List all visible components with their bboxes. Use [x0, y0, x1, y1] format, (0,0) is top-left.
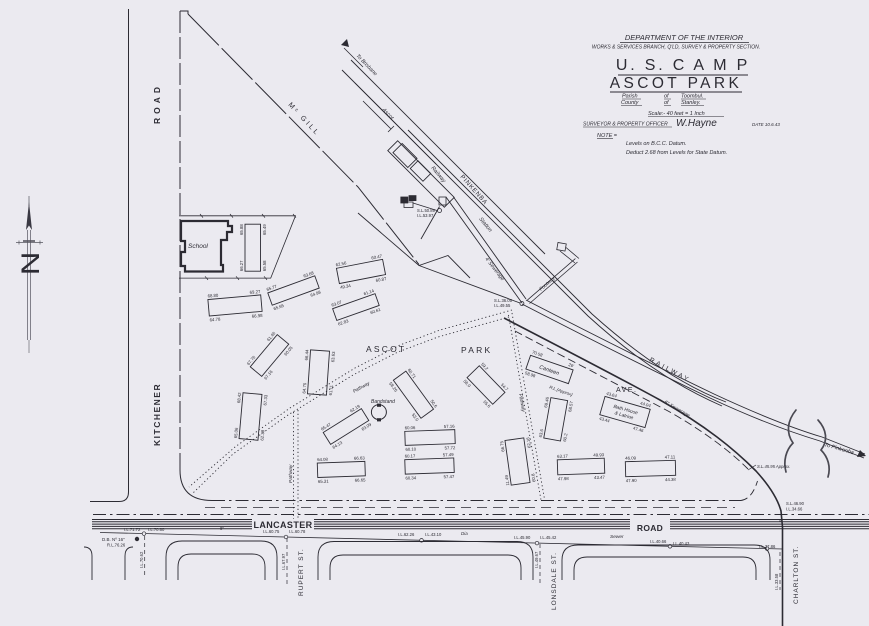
svg-text:County: County: [621, 100, 640, 106]
svg-text:47.98: 47.98: [558, 476, 570, 481]
svg-text:8″: 8″: [220, 526, 224, 531]
svg-text:ASCOT: ASCOT: [366, 344, 406, 354]
svg-text:I.L.62.26: I.L.62.26: [398, 532, 415, 537]
svg-text:57.47: 57.47: [444, 474, 456, 479]
svg-text:I.L.45.90: I.L.45.90: [514, 535, 531, 540]
svg-text:65.49: 65.49: [262, 224, 267, 235]
svg-text:AVE.: AVE.: [616, 387, 637, 394]
svg-text:60.17: 60.17: [405, 453, 417, 458]
svg-text:Bandstand: Bandstand: [371, 399, 395, 405]
svg-text:43.47: 43.47: [594, 475, 606, 480]
svg-text:I.L.40.66: I.L.40.66: [650, 539, 667, 544]
svg-text:I.L.67.97: I.L.67.97: [281, 553, 286, 570]
svg-text:47.90: 47.90: [626, 478, 637, 483]
svg-text:S.L.46.90: S.L.46.90: [786, 501, 805, 506]
svg-text:68.80: 68.80: [207, 293, 219, 299]
svg-text:DEPARTMENT OF THE INTERIOR: DEPARTMENT OF THE INTERIOR: [625, 33, 744, 42]
svg-text:N: N: [16, 252, 43, 276]
svg-text:Pathway: Pathway: [288, 464, 294, 483]
svg-text:63.17: 63.17: [557, 453, 569, 458]
svg-text:I.L.53.97: I.L.53.97: [417, 213, 434, 218]
svg-text:57.49: 57.49: [443, 452, 455, 457]
svg-text:66.44: 66.44: [304, 349, 310, 361]
svg-text:School: School: [188, 243, 208, 250]
svg-text:60.06: 60.06: [405, 425, 417, 430]
svg-text:I.L.34.66: I.L.34.66: [786, 507, 803, 512]
svg-text:65.31: 65.31: [318, 479, 330, 484]
svg-text:W.Hayne: W.Hayne: [676, 118, 717, 129]
svg-text:66.63: 66.63: [354, 455, 366, 460]
svg-text:R.L.76.26: R.L.76.26: [107, 543, 126, 548]
svg-text:62.38: 62.38: [259, 429, 265, 441]
svg-text:Toombul.: Toombul.: [681, 94, 703, 100]
svg-text:I.L.60.75: I.L.60.75: [263, 529, 280, 534]
svg-text:64.78: 64.78: [209, 316, 221, 322]
svg-text:ROAD: ROAD: [152, 83, 162, 124]
svg-text:65.06: 65.06: [233, 427, 239, 439]
svg-text:66.98: 66.98: [252, 313, 264, 319]
svg-text:I.L.49.55: I.L.49.55: [494, 303, 511, 308]
svg-text:Stanley.: Stanley.: [681, 100, 701, 106]
svg-text:KITCHENER: KITCHENER: [152, 383, 162, 446]
svg-text:RUPERT ST.: RUPERT ST.: [298, 548, 305, 596]
svg-text:66.65: 66.65: [355, 477, 367, 482]
svg-text:65.58: 65.58: [262, 260, 267, 271]
svg-text:63.63: 63.63: [330, 351, 336, 363]
svg-text:64.75: 64.75: [302, 382, 308, 394]
svg-text:PARK: PARK: [461, 345, 492, 355]
svg-text:60.10: 60.10: [405, 446, 417, 451]
svg-text:69.27: 69.27: [249, 289, 261, 295]
svg-text:67.33: 67.33: [263, 394, 269, 406]
svg-text:Levels on B.C.C. Datum.: Levels on B.C.C. Datum.: [626, 141, 687, 147]
svg-text:I.L.45.42: I.L.45.42: [540, 535, 557, 540]
svg-text:DATE 10.6.43: DATE 10.6.43: [752, 122, 780, 127]
svg-text:60.34: 60.34: [405, 475, 417, 480]
svg-text:LONSDALE ST.: LONSDALE ST.: [551, 552, 558, 610]
svg-text:57.16: 57.16: [444, 424, 456, 429]
svg-text:Sewer: Sewer: [610, 534, 624, 540]
svg-text:of: of: [664, 100, 669, 106]
svg-text:I.L.49.67: I.L.49.67: [534, 551, 539, 568]
svg-text:I.L.43.10: I.L.43.10: [425, 532, 442, 537]
svg-text:SURVEYOR & PROPERTY OFFICER: SURVEYOR & PROPERTY OFFICER: [583, 122, 668, 128]
svg-text:44.38: 44.38: [665, 477, 676, 482]
svg-text:ASCOT PARK: ASCOT PARK: [610, 75, 742, 92]
svg-text:47.11: 47.11: [665, 454, 676, 459]
svg-text:I.L.33.58: I.L.33.58: [774, 573, 779, 590]
svg-text:Scale:- 40 feet = 1 Inch: Scale:- 40 feet = 1 Inch: [648, 111, 705, 117]
svg-text:U. S. C A M P: U. S. C A M P: [616, 57, 750, 74]
svg-text:WORKS & SERVICES BRANCH, Q′LD,: WORKS & SERVICES BRANCH, Q′LD, SURVEY & …: [592, 45, 760, 51]
svg-text:I.L.70.62: I.L.70.62: [139, 551, 144, 568]
svg-text:ROAD: ROAD: [637, 523, 663, 533]
svg-text:49.93: 49.93: [593, 452, 605, 457]
svg-text:4″: 4″: [779, 518, 783, 523]
svg-text:Dia: Dia: [461, 531, 468, 536]
svg-text:S.L.45.95 Approx.: S.L.45.95 Approx.: [757, 464, 790, 469]
svg-text:I.L.60.78: I.L.60.78: [289, 529, 306, 534]
svg-text:64.08: 64.08: [317, 457, 329, 462]
svg-text:I.L.71.72: I.L.71.72: [124, 527, 141, 532]
svg-text:65.88: 65.88: [239, 224, 244, 235]
svg-text:Deduct 2.68 from Levels for: Deduct 2.68 from Levels for State Datum.: [626, 150, 727, 156]
svg-text:of: of: [664, 94, 669, 100]
svg-text:61.11: 61.11: [328, 384, 334, 395]
svg-text:D.B. Nº 16″: D.B. Nº 16″: [102, 537, 125, 542]
svg-text:68.42: 68.42: [236, 392, 242, 404]
svg-text:66.27: 66.27: [239, 260, 244, 271]
svg-text:CHARLTON ST.: CHARLTON ST.: [793, 546, 800, 604]
svg-text:I.L.70.60: I.L.70.60: [148, 527, 165, 532]
svg-text:NOTE =: NOTE =: [597, 133, 618, 139]
svg-text:57.72: 57.72: [445, 445, 457, 450]
svg-text:46.09: 46.09: [625, 455, 636, 460]
svg-text:Parish: Parish: [622, 94, 638, 100]
